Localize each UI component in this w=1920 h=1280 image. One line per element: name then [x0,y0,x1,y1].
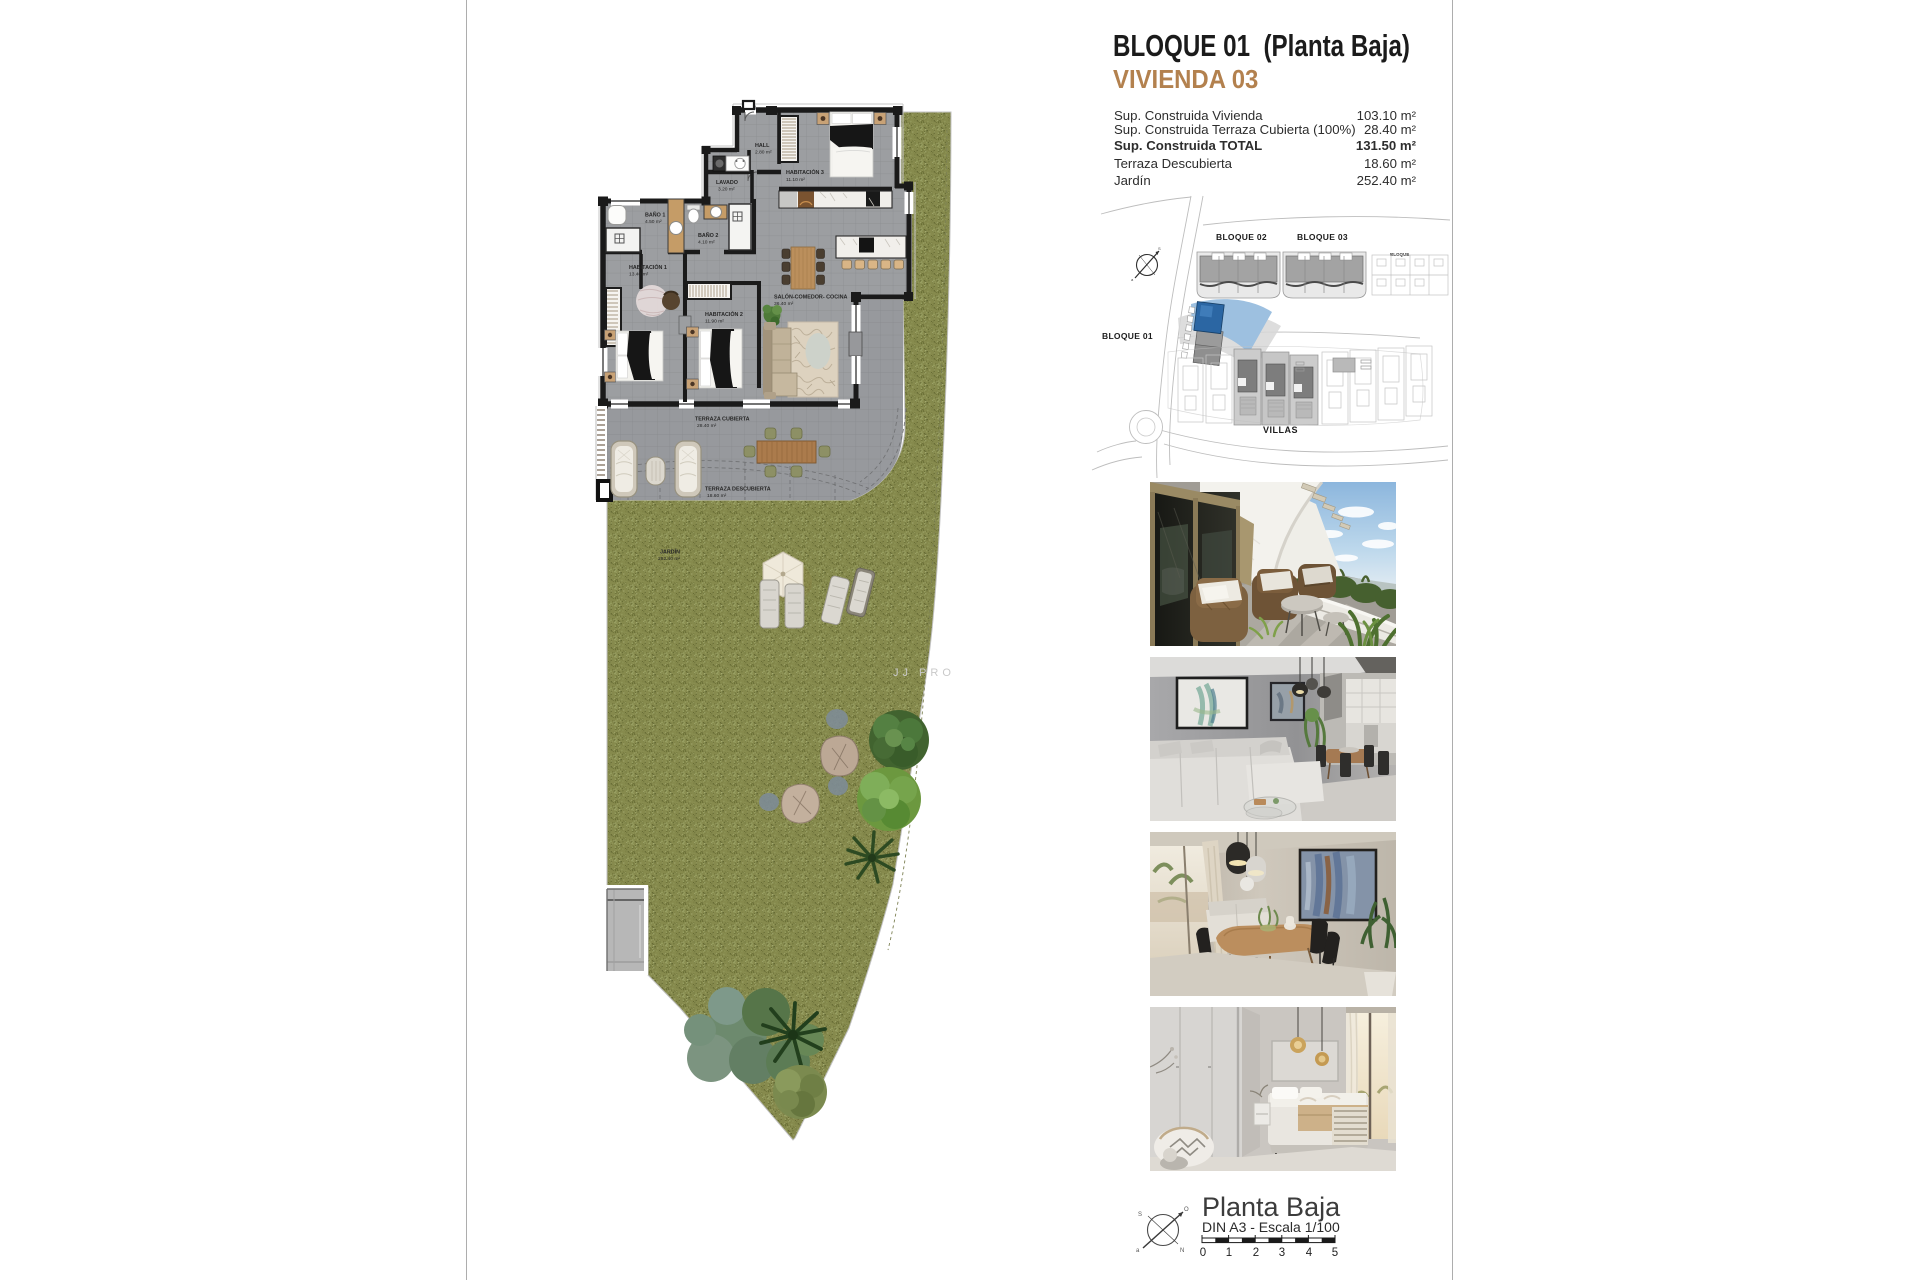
svg-text:4: 4 [1306,1247,1313,1259]
svg-text:13.40 m²: 13.40 m² [629,272,649,278]
svg-text:HALL: HALL [755,143,770,149]
svg-text:JARDÍN: JARDÍN [660,548,680,556]
svg-text:2.80 m²: 2.80 m² [755,150,772,156]
svg-text:28.40 m²: 28.40 m² [697,423,717,429]
svg-text:36.40 m²: 36.40 m² [774,301,794,307]
svg-text:HABITACIÓN 3: HABITACIÓN 3 [786,168,824,176]
svg-text:S: S [1158,246,1161,251]
svg-text:N: N [1180,1248,1184,1254]
svg-text:BAÑO 1: BAÑO 1 [645,212,665,219]
svg-text:BLOQUE: BLOQUE [1390,252,1409,257]
svg-text:2: 2 [1253,1247,1259,1259]
svg-text:4.10 m²: 4.10 m² [698,240,715,246]
svg-text:11.10 m²: 11.10 m² [786,177,805,183]
svg-text:a: a [1136,1248,1140,1254]
svg-text:0: 0 [1200,1247,1206,1259]
svg-text:4.50 m²: 4.50 m² [645,219,662,225]
svg-text:BLOQUE 02: BLOQUE 02 [1216,232,1267,242]
svg-text:HABITACIÓN 2: HABITACIÓN 2 [705,310,743,318]
svg-text:JJ PRO: JJ PRO [893,667,955,679]
svg-text:LAVADO: LAVADO [716,180,738,186]
svg-text:252.40 m²: 252.40 m² [658,556,680,562]
svg-text:a: a [1131,277,1134,282]
svg-text:SALÓN-COMEDOR- COCINA: SALÓN-COMEDOR- COCINA [774,293,847,301]
svg-text:HABITACIÓN 1: HABITACIÓN 1 [629,263,667,271]
svg-text:BLOQUE 01: BLOQUE 01 [1102,331,1153,341]
svg-text:BLOQUE 03: BLOQUE 03 [1297,232,1348,242]
svg-text:3: 3 [1279,1247,1285,1259]
svg-text:5: 5 [1332,1247,1338,1259]
svg-text:TERRAZA DESCUBIERTA: TERRAZA DESCUBIERTA [705,487,771,493]
svg-text:1: 1 [1226,1247,1232,1259]
svg-text:S: S [1138,1212,1142,1218]
svg-text:O: O [1184,1207,1189,1213]
svg-text:BAÑO 2: BAÑO 2 [698,232,718,239]
svg-text:TERRAZA CUBIERTA: TERRAZA CUBIERTA [695,417,750,423]
svg-text:3.20 m²: 3.20 m² [718,187,735,193]
svg-text:11.90 m²: 11.90 m² [705,319,724,325]
svg-text:VILLAS: VILLAS [1263,425,1298,435]
svg-text:18.60 m²: 18.60 m² [707,493,727,499]
